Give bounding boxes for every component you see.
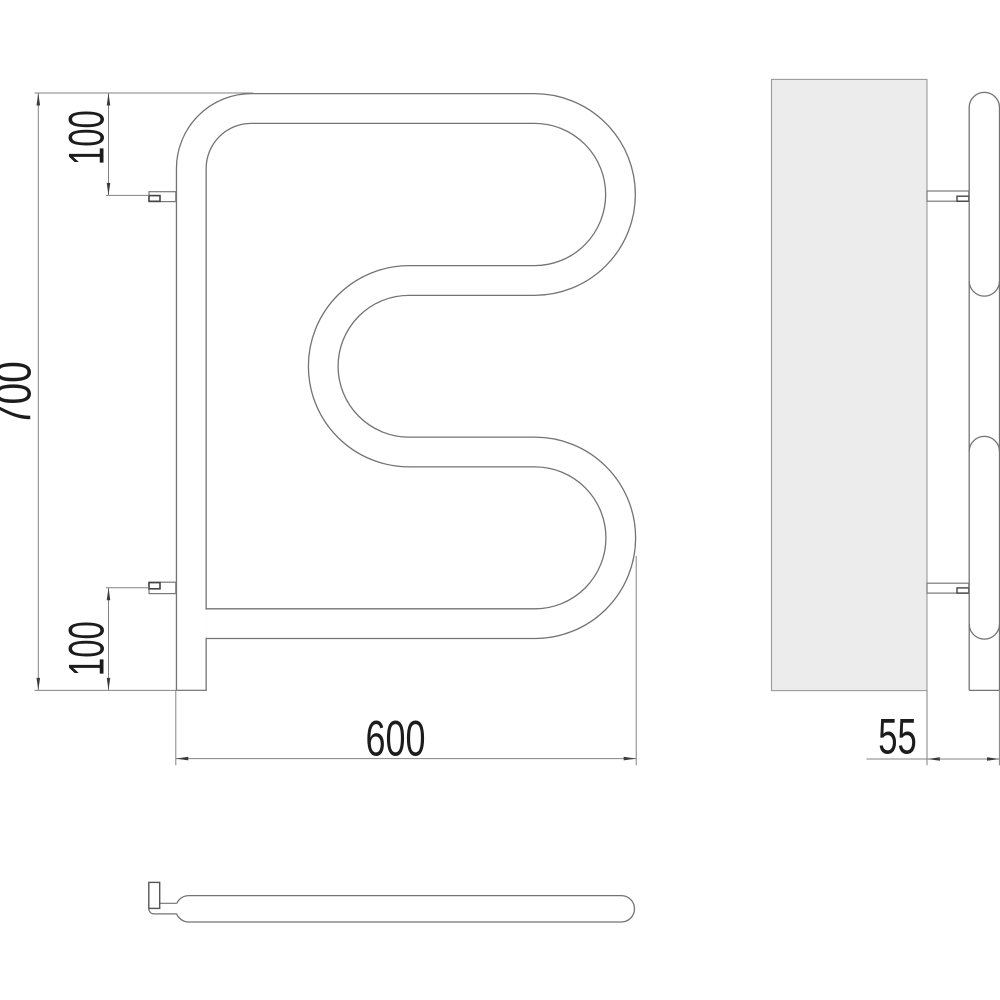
svg-text:600: 600 <box>366 710 426 766</box>
svg-text:100: 100 <box>59 621 115 676</box>
svg-text:55: 55 <box>878 709 917 765</box>
svg-text:100: 100 <box>59 110 115 165</box>
svg-text:700: 700 <box>0 361 42 426</box>
